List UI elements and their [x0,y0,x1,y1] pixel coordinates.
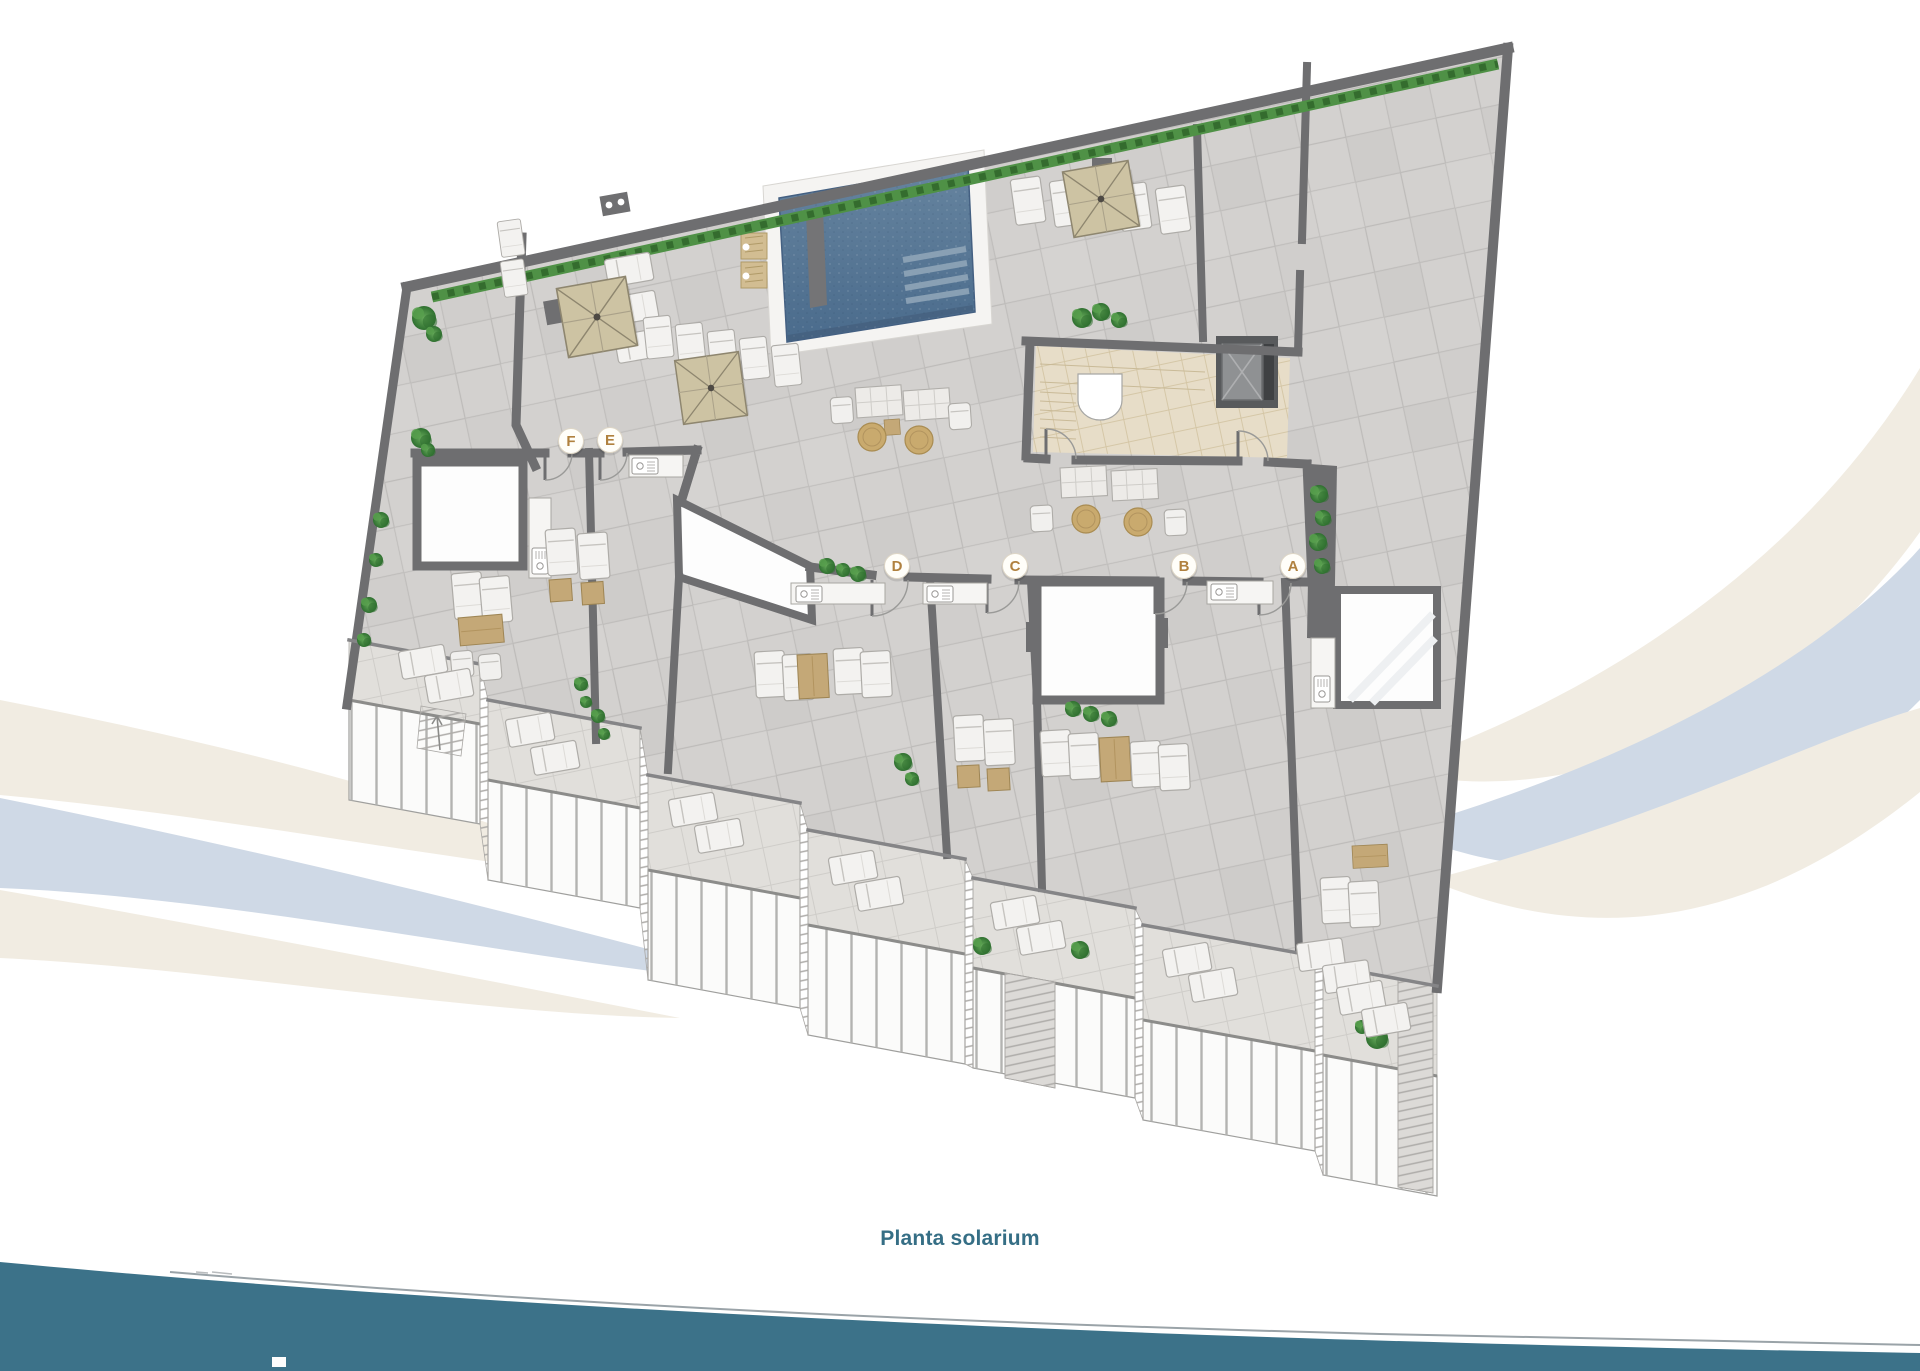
sun-lounger [1130,740,1162,788]
umbrella-icon [1062,160,1141,237]
page: F E D C B A [0,0,1920,1371]
pouf-stool [858,423,886,451]
sun-lounger [1040,729,1072,777]
side-table [957,765,980,788]
void-skylight-glazed [1337,590,1437,705]
stair-strip [1315,956,1323,1175]
kitchenette [1311,638,1335,708]
unit-marker-c[interactable]: C [1002,554,1029,582]
void-skylight [1037,582,1160,700]
footer-band [0,1262,1920,1371]
table [1099,736,1131,782]
sun-lounger [500,259,528,298]
stair-strip [1135,908,1143,1120]
kitchenette [923,583,987,604]
stair-wide [1005,973,1055,1088]
chair [830,396,854,423]
sun-lounger [1320,876,1352,924]
unit-marker-label: D [892,558,903,575]
table [797,653,829,699]
pouf-stool [1072,505,1100,533]
table [1111,469,1159,501]
unit-marker-label: B [1179,558,1190,575]
table [458,614,504,646]
table [903,388,951,421]
sun-lounger [953,714,985,762]
unit-marker-label: E [605,432,615,449]
chair [1164,509,1187,536]
chair [478,653,502,681]
unit-marker-a[interactable]: A [1280,554,1307,582]
shower-panel [599,192,630,217]
plan-caption: Planta solarium [880,1227,1039,1251]
solarium-floor-plan: F E D C B A [0,0,1920,1371]
sun-lounger [754,650,786,698]
kitchenette [629,455,683,477]
table [1352,844,1388,868]
umbrella-icon [675,351,750,424]
kitchenette [791,583,885,604]
unit-marker-label: F [566,433,575,450]
stair-void [1078,374,1122,420]
side-table [884,419,900,435]
sun-lounger [497,219,525,258]
side-table [549,578,572,601]
sun-lounger [577,532,610,580]
table [1060,466,1108,498]
chair [1030,505,1053,532]
pouf-stool [1124,508,1152,536]
sun-lounger [1348,880,1380,928]
sun-lounger [739,336,770,380]
void-skylight [417,462,523,566]
sun-lounger [1068,732,1100,780]
sun-lounger [643,315,674,359]
stair-strip [965,859,973,1068]
sun-lounger [771,343,802,387]
unit-f-stair [417,706,466,756]
plan-body: F E D C B A [347,48,1508,1196]
unit-marker-b[interactable]: B [1171,554,1198,582]
unit-marker-f[interactable]: F [558,429,585,457]
chair [948,402,972,429]
kitchenette [1207,581,1273,604]
umbrella-icon [556,276,639,357]
sun-lounger [1155,185,1191,235]
table [855,385,903,418]
sun-lounger [860,650,892,698]
unit-marker-label: C [1010,558,1021,575]
stair-strip [800,803,808,1035]
side-table [581,581,604,604]
pouf-stool [905,426,933,454]
void-wall-stub [1158,618,1168,648]
unit-marker-label: A [1288,558,1299,575]
sun-lounger [545,528,578,576]
stair-strip [640,728,648,980]
side-table [987,768,1010,791]
sun-lounger [983,718,1015,766]
sun-lounger [1158,743,1190,791]
unit-marker-d[interactable]: D [884,554,911,582]
footer-teal-swoosh [0,1262,1920,1371]
unit-marker-e[interactable]: E [597,428,624,456]
sun-lounger [1010,176,1046,226]
